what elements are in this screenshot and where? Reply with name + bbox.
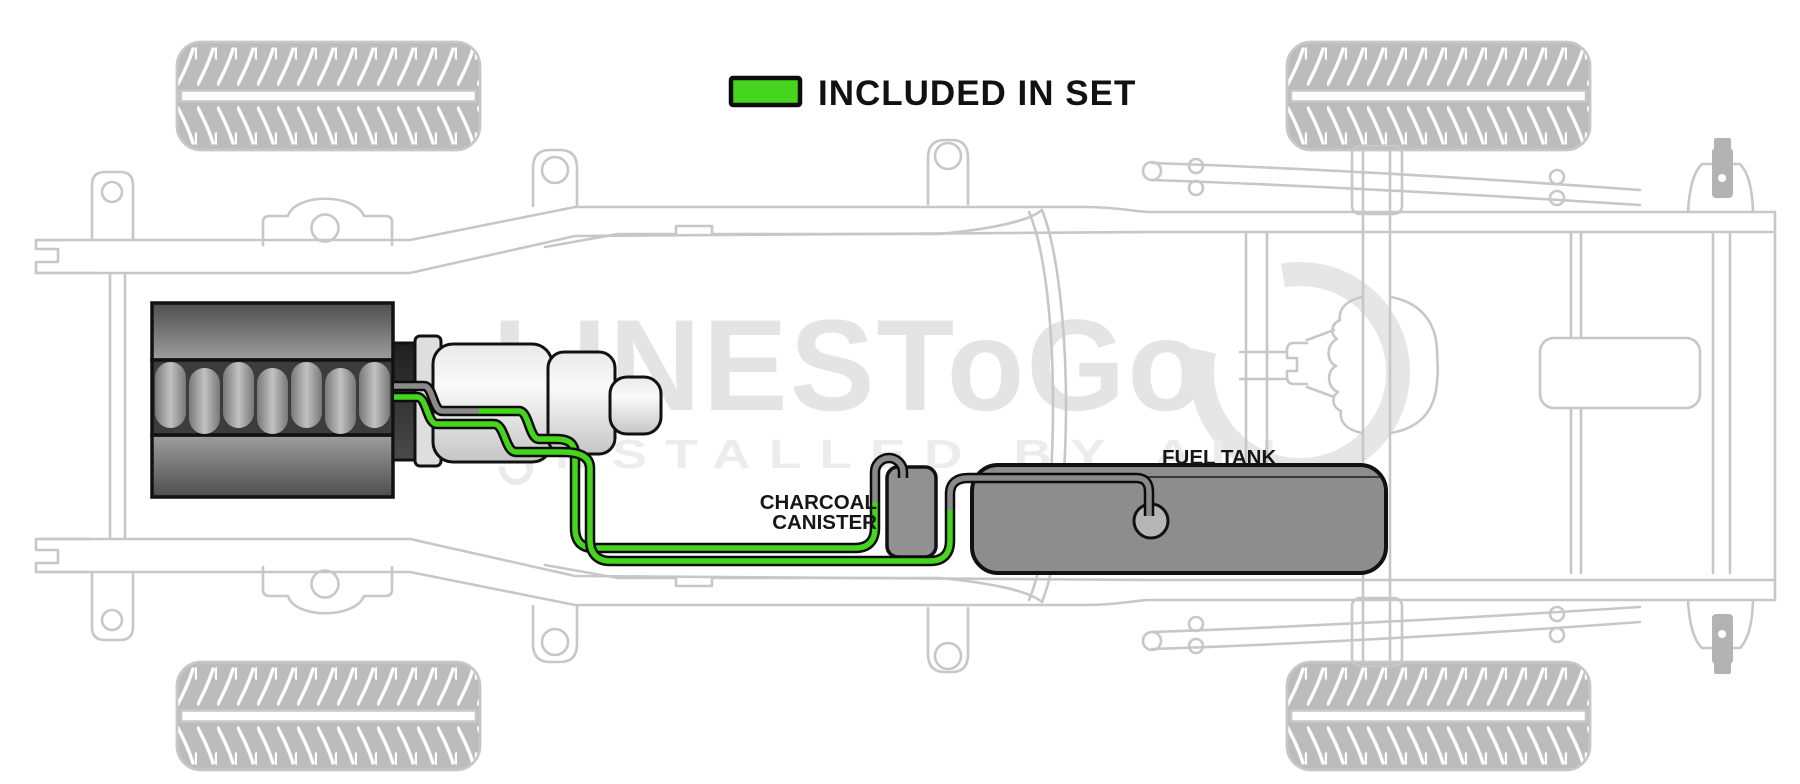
front-crossmember <box>110 273 125 539</box>
axle-u-bolt-plate <box>1352 146 1402 214</box>
legend-included-label: INCLUDED IN SET <box>818 74 1136 113</box>
legend-included-swatch <box>731 78 800 105</box>
shackle-pin-hole <box>1718 174 1726 182</box>
rear-box-crossmember <box>1540 338 1700 408</box>
tire-front-left <box>177 42 480 150</box>
cab-mount-hole <box>542 157 568 183</box>
dome-mount-bracket <box>263 199 392 245</box>
legend: INCLUDED IN SET <box>731 74 1136 113</box>
spring-eye <box>1143 162 1161 180</box>
leaf-spring-upper <box>1152 163 1640 190</box>
spring-shackle-bolt <box>1714 138 1731 151</box>
fuel-line-diagram: LINESToGo INSTALLED BY ALL <box>0 0 1800 784</box>
cab-mount-bracket <box>928 140 968 204</box>
fuel-tank-label: FUEL TANK <box>1162 446 1276 469</box>
front-mount-hole <box>102 182 122 202</box>
cab-body-line <box>545 210 1042 247</box>
rear-crossmember <box>1713 233 1730 573</box>
spring-clamp <box>1550 191 1564 205</box>
spring-clamp <box>1189 181 1203 195</box>
transmission-body <box>433 344 552 462</box>
tire-rear-left <box>1287 42 1590 150</box>
diagram-canvas: LINESToGo INSTALLED BY ALL <box>0 0 1800 784</box>
rail-end-notch <box>36 240 92 273</box>
pinion-yoke <box>1287 343 1307 384</box>
spring-clamp <box>1550 170 1564 184</box>
spring-shackle-plate <box>1712 148 1733 198</box>
engine-bank-bottom <box>152 435 393 497</box>
cab-mount-hole <box>935 143 961 169</box>
frame-rail-inner-edge <box>36 232 1773 273</box>
differential-left <box>1329 297 1362 433</box>
dome-mount-hole <box>312 215 339 242</box>
charcoal-canister-label-line2: CANISTER <box>772 511 877 534</box>
transmission-tail <box>610 377 661 434</box>
engine-bank-top <box>152 303 393 360</box>
charcoal-canister <box>887 467 936 557</box>
cab-mount-bracket <box>533 150 577 206</box>
